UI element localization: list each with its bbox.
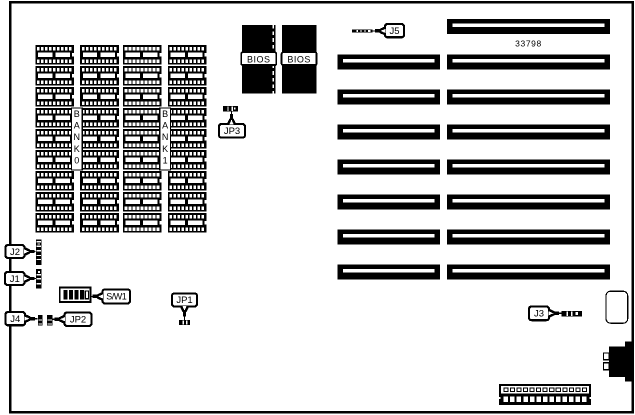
svg-text:JP1: JP1 <box>176 295 192 306</box>
svg-text:A: A <box>162 121 168 131</box>
svg-text:BIOS: BIOS <box>247 54 271 64</box>
svg-text:N: N <box>74 132 81 142</box>
svg-text:J2: J2 <box>10 247 20 258</box>
svg-text:BIOS: BIOS <box>287 54 311 64</box>
svg-text:J5: J5 <box>389 26 399 37</box>
svg-text:K: K <box>162 144 168 154</box>
svg-text:A: A <box>74 121 80 131</box>
svg-text:J1: J1 <box>10 274 20 285</box>
svg-text:0: 0 <box>74 155 79 165</box>
svg-text:J3: J3 <box>534 309 544 320</box>
svg-text:N: N <box>162 132 169 142</box>
svg-text:K: K <box>74 144 80 154</box>
svg-text:JP3: JP3 <box>224 126 240 137</box>
svg-text:B: B <box>74 109 80 119</box>
svg-text:B: B <box>162 109 168 119</box>
svg-text:1: 1 <box>163 155 168 165</box>
svg-text:J4: J4 <box>10 314 20 325</box>
svg-text:33798: 33798 <box>515 38 542 48</box>
svg-text:JP2: JP2 <box>70 315 86 326</box>
svg-text:S/W1: S/W1 <box>106 292 126 302</box>
